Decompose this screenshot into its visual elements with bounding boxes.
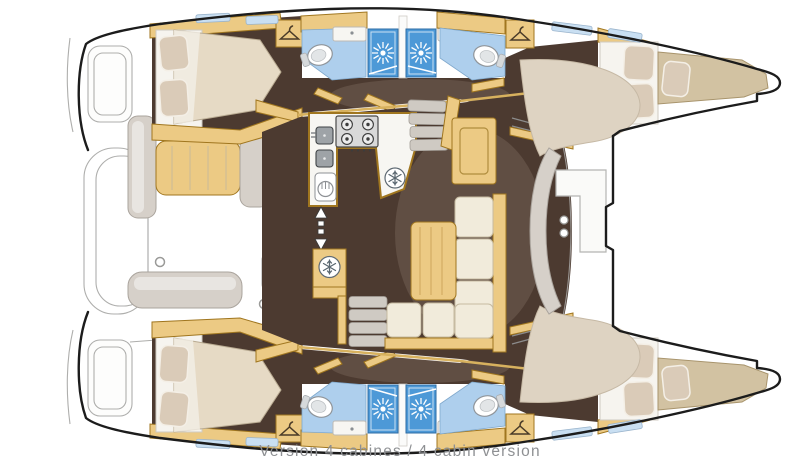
- salon: [262, 92, 573, 370]
- washbasin: [333, 27, 366, 41]
- salon-table: [411, 222, 456, 300]
- refrigerator-icon: [385, 168, 405, 188]
- bathroom-forward-port: [406, 382, 507, 450]
- bathroom-aft-port: [299, 382, 407, 450]
- stern-platform-starboard: [67, 38, 132, 132]
- bathroom-forward-starboard: [406, 12, 507, 80]
- stove-icon: [336, 116, 378, 152]
- pillow: [159, 345, 189, 383]
- wardrobe-aft-port: [276, 415, 303, 442]
- pillow: [158, 35, 189, 72]
- cockpit-bench-highlight: [132, 121, 144, 213]
- pillow: [159, 79, 189, 117]
- cockpit-table: [156, 141, 240, 195]
- chart-desk: [452, 118, 496, 184]
- trampoline-edge: [606, 136, 613, 326]
- refrigerator-cabinet: [313, 249, 346, 298]
- wardrobe-forward-port: [506, 414, 534, 442]
- forward-cockpit: [520, 59, 640, 402]
- wardrobe-aft-starboard: [276, 20, 303, 47]
- dishwasher-icon: [315, 173, 336, 201]
- washbasin: [333, 421, 366, 435]
- caption-text: Version 4 cabines / 4 cabin version: [0, 443, 800, 461]
- wardrobe-forward-starboard: [506, 20, 534, 48]
- pillow: [661, 61, 690, 98]
- floor-plan-svg: [0, 0, 800, 467]
- bathroom-aft-starboard: [299, 12, 407, 80]
- pillow: [623, 45, 655, 81]
- catamaran-floorplan: Version 4 cabines / 4 cabin version: [0, 0, 800, 467]
- pillow: [623, 381, 655, 417]
- pillow: [158, 391, 189, 428]
- stern-platform-port: [67, 330, 132, 424]
- pillow: [661, 365, 690, 402]
